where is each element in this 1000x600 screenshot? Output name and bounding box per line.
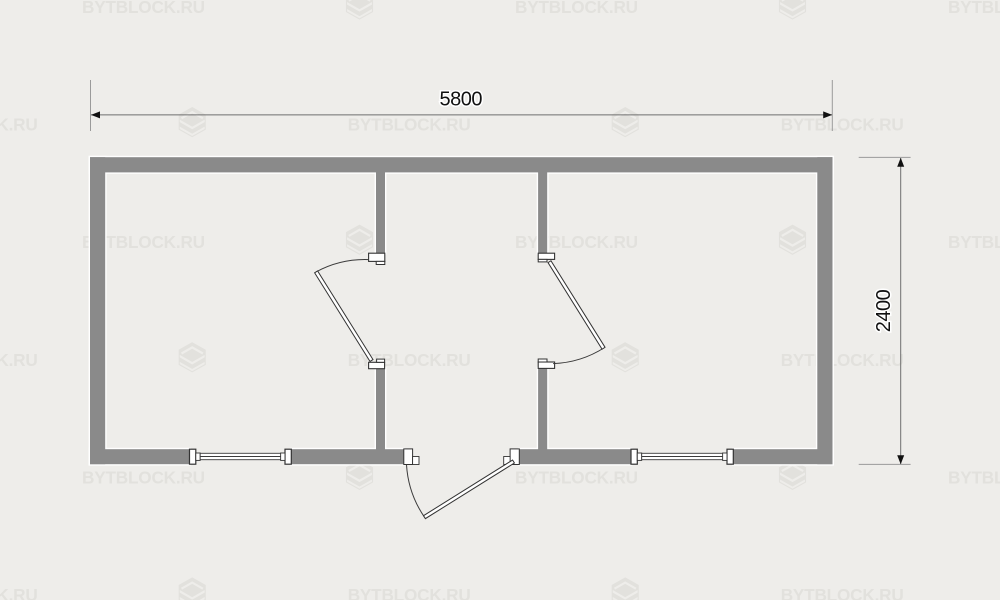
svg-text:BYTBLOCK.RU: BYTBLOCK.RU <box>0 585 38 600</box>
svg-text:5800: 5800 <box>440 89 483 111</box>
svg-text:BYTBLOCK.RU: BYTBLOCK.RU <box>781 115 904 135</box>
svg-text:BYTBLOCK.RU: BYTBLOCK.RU <box>348 115 471 135</box>
svg-text:BYTBLOCK.RU: BYTBLOCK.RU <box>948 0 1000 17</box>
svg-text:BYTBLOCK.RU: BYTBLOCK.RU <box>515 467 638 487</box>
svg-text:BYTBLOCK.RU: BYTBLOCK.RU <box>515 0 638 17</box>
svg-text:BYTBLOCK.RU: BYTBLOCK.RU <box>948 467 1000 487</box>
svg-text:BYTBLOCK.RU: BYTBLOCK.RU <box>781 350 904 370</box>
svg-text:BYTBLOCK.RU: BYTBLOCK.RU <box>82 467 205 487</box>
svg-text:2400: 2400 <box>873 289 895 332</box>
svg-text:BYTBLOCK.RU: BYTBLOCK.RU <box>948 232 1000 252</box>
svg-text:BYTBLOCK.RU: BYTBLOCK.RU <box>515 232 638 252</box>
svg-text:BYTBLOCK.RU: BYTBLOCK.RU <box>348 585 471 600</box>
svg-text:BYTBLOCK.RU: BYTBLOCK.RU <box>0 115 38 135</box>
svg-text:BYTBLOCK.RU: BYTBLOCK.RU <box>781 585 904 600</box>
svg-text:BYTBLOCK.RU: BYTBLOCK.RU <box>0 350 38 370</box>
svg-text:BYTBLOCK.RU: BYTBLOCK.RU <box>82 0 205 17</box>
